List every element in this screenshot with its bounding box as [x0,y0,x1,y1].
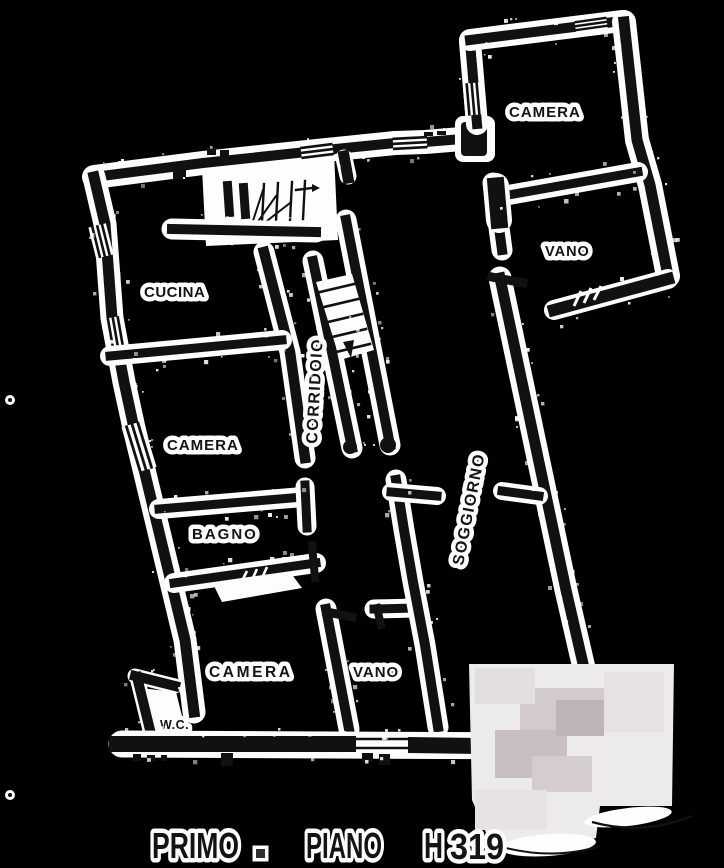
svg-text:CAMERA: CAMERA [509,104,581,121]
svg-text:CUCINA: CUCINA [144,284,205,301]
svg-text:H: H [424,825,443,866]
svg-text:VANO: VANO [353,664,399,681]
svg-text:PRIMO: PRIMO [152,825,239,866]
svg-text:VANO: VANO [545,244,590,260]
svg-text:W.C.: W.C. [160,718,189,732]
svg-text:CAMERA: CAMERA [167,437,239,454]
svg-text:PIANO: PIANO [306,825,382,866]
svg-text:CAMERA: CAMERA [209,664,293,681]
svg-text:BAGNO: BAGNO [192,526,258,543]
svg-text:319: 319 [450,826,504,867]
